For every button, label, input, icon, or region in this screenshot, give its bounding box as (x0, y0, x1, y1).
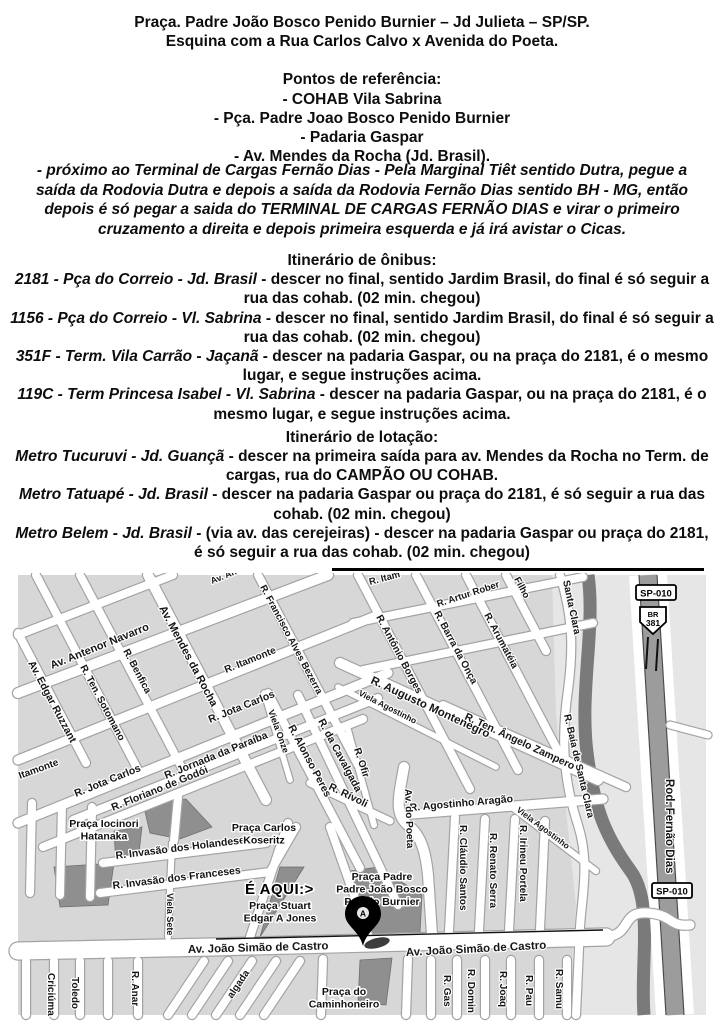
referencias-heading: Pontos de referência: (0, 70, 724, 89)
lotacao-heading: Itinerário de lotação: (10, 428, 714, 447)
document-text: Praça. Padre João Bosco Penido Burnier –… (0, 0, 724, 562)
lotacao-route-name: Metro Tucuruvi - Jd. Guançã (15, 448, 224, 465)
driving-directions: - próximo ao Terminal de Cargas Fernão D… (0, 161, 724, 239)
bus-route-desc: - descer na padaria Gaspar, ou na praça … (243, 348, 709, 384)
street-label: R. Renato Serra (487, 833, 498, 908)
bus-route-name: 1156 - Pça do Correio - Vl. Sabrina (10, 310, 261, 327)
section-referencias: Pontos de referência: - COHAB Vila Sabri… (0, 70, 724, 166)
marker-letter: A (360, 909, 366, 919)
lotacao-route: Metro Tatuapé - Jd. Brasil - descer na p… (10, 485, 714, 523)
street (30, 803, 32, 893)
section-onibus: Itinerário de ônibus: 2181 - Pça do Corr… (0, 251, 724, 424)
horizontal-rule (332, 568, 704, 571)
map-region: SP-010 BR 381 SP-010 Av. AnR. ItamR. Art… (0, 573, 724, 1024)
street-label: Toledo (69, 977, 80, 1009)
street-label: Criciúma (45, 973, 56, 1016)
street (174, 797, 178, 841)
bus-route-name: 2181 - Pça do Correio - Jd. Brasil (15, 271, 257, 288)
street-label: Av. do Poeta (402, 789, 415, 849)
badge-label: SP-010 (656, 887, 688, 898)
bus-route-name: 351F - Term. Vila Carrão - Jaçanã (16, 348, 259, 365)
street (406, 959, 408, 1015)
lotacao-route-desc: - descer na primeira saída para av. Mend… (224, 448, 708, 484)
sp010-badge: SP-010 (636, 585, 676, 600)
shield-label-381: 381 (646, 618, 660, 628)
place-label: Praça StuartEdgar A Jones (244, 900, 317, 925)
lotacao-route-name: Metro Belem - Jd. Brasil (15, 525, 192, 542)
sp010-badge: SP-010 (652, 883, 692, 898)
lotacao-route: Metro Belem - Jd. Brasil - (via av. das … (10, 524, 714, 562)
lotacao-route-desc: - (via av. das cerejeiras) - descer na p… (192, 525, 709, 561)
street-label: R. Pau (523, 975, 534, 1006)
title-line2: Esquina com a Rua Carlos Calvo x Avenida… (0, 32, 724, 51)
bus-route-desc: - descer no final, sentido Jardim Brasil… (244, 310, 714, 346)
bus-route: 119C - Term Princesa Isabel - Vl. Sabrin… (10, 385, 714, 423)
street-label: R. Anar (129, 971, 140, 1006)
page-title: Praça. Padre João Bosco Penido Burnier –… (0, 13, 724, 51)
street-label: R. Cláudio Santos (457, 825, 468, 911)
bus-route-desc: - descer no final, sentido Jardim Brasil… (244, 271, 710, 307)
street-label: R. Irineu Portela (517, 825, 528, 902)
title-line1: Praça. Padre João Bosco Penido Burnier –… (0, 13, 724, 32)
street-label: R. Samu (553, 969, 564, 1009)
bus-route: 1156 - Pça do Correio - Vl. Sabrina - de… (10, 309, 714, 347)
referencia-item: - COHAB Vila Sabrina (0, 90, 724, 109)
lotacao-route-name: Metro Tatuapé - Jd. Brasil (19, 486, 208, 503)
bus-route: 351F - Term. Vila Carrão - Jaçanã - desc… (10, 347, 714, 385)
here-callout: É AQUI:> (245, 881, 314, 898)
referencia-item: - Pça. Padre Joao Bosco Penido Burnier (0, 109, 724, 128)
street-label: R. Gas (441, 975, 452, 1007)
bus-route-name: 119C - Term Princesa Isabel - Vl. Sabrin… (17, 386, 315, 403)
referencia-item: - Padaria Gaspar (0, 128, 724, 147)
street (540, 821, 545, 929)
lotacao-route-desc: - descer na padaria Gaspar ou praça do 2… (208, 486, 705, 522)
street-label: R. Domin (465, 969, 476, 1013)
bus-route: 2181 - Pça do Correio - Jd. Brasil - des… (10, 270, 714, 308)
street-label: Rod. Fernão Dias (663, 779, 675, 874)
onibus-heading: Itinerário de ônibus: (10, 251, 714, 270)
street-label: Viela Sete (165, 893, 175, 935)
street (60, 805, 62, 895)
section-lotacao: Itinerário de lotação: Metro Tucuruvi - … (0, 428, 724, 562)
badge-label: SP-010 (640, 589, 672, 600)
street-map: SP-010 BR 381 SP-010 Av. AnR. ItamR. Art… (0, 573, 724, 1024)
street-label: R. Joaq (497, 971, 508, 1007)
lotacao-route: Metro Tucuruvi - Jd. Guançã - descer na … (10, 447, 714, 485)
